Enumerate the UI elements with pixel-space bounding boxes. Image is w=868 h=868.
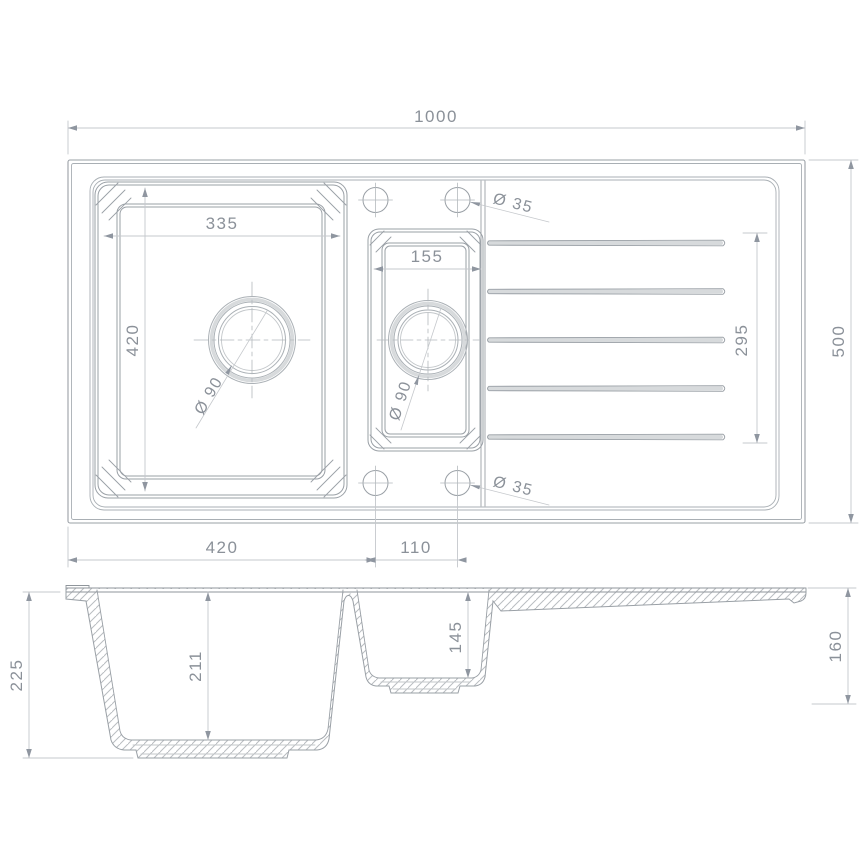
drainer-rib	[488, 240, 725, 246]
tap-hole	[359, 466, 393, 500]
deck-recess-outline	[90, 177, 779, 510]
svg-text:160: 160	[826, 630, 845, 663]
svg-text:225: 225	[7, 659, 26, 692]
svg-text:500: 500	[829, 325, 848, 358]
drainer-ribs	[488, 240, 725, 440]
dim-bowl-spacing: 110	[400, 538, 432, 557]
small-bowl-drain: Ø 90	[377, 289, 479, 430]
dim-bowl-offset: 420 110	[68, 497, 467, 567]
tap-holes	[359, 183, 475, 500]
small-bowl-opening	[357, 589, 489, 678]
dim-overall-width: 1000	[68, 107, 805, 154]
svg-text:420: 420	[206, 538, 239, 557]
dim-overall-depth: 500	[809, 160, 858, 523]
svg-text:335: 335	[206, 214, 239, 233]
svg-text:1000: 1000	[414, 107, 458, 126]
svg-text:145: 145	[446, 621, 465, 654]
dim-main-drain: Ø 90	[192, 374, 227, 418]
tap-hole	[441, 466, 475, 500]
small-drain-arrow	[414, 375, 419, 385]
main-bowl-drain: Ø 90	[192, 282, 310, 428]
dim-drainer-end-height: 160	[808, 588, 856, 704]
dim-main-bowl-length: 420	[123, 188, 148, 491]
svg-text:211: 211	[186, 650, 205, 682]
svg-text:420: 420	[123, 324, 142, 357]
drawing-sheet: Ø 90 Ø 90 1000	[0, 0, 868, 868]
dim-small-bowl-width: 155	[374, 247, 481, 272]
section-view: 225 211 145 160	[7, 586, 856, 759]
tap-hole	[359, 183, 393, 217]
plan-view: Ø 90 Ø 90 1000	[68, 107, 858, 567]
svg-text:295: 295	[732, 324, 751, 357]
dim-tap-hole-top: Ø 35	[470, 190, 549, 222]
dim-tap-hole-bottom: Ø 35	[470, 473, 549, 505]
drainer-rib	[488, 434, 725, 440]
drawing-canvas: Ø 90 Ø 90 1000	[0, 0, 868, 868]
tap-hole	[441, 183, 475, 217]
drainer-rib	[488, 337, 725, 343]
drainer-rib	[488, 386, 725, 392]
dim-main-bowl-width: 335	[104, 214, 340, 239]
main-bowl-opening	[97, 589, 343, 740]
svg-text:155: 155	[411, 247, 444, 266]
dim-drainer-length: 295	[732, 233, 767, 443]
drainer-rib	[488, 289, 725, 295]
